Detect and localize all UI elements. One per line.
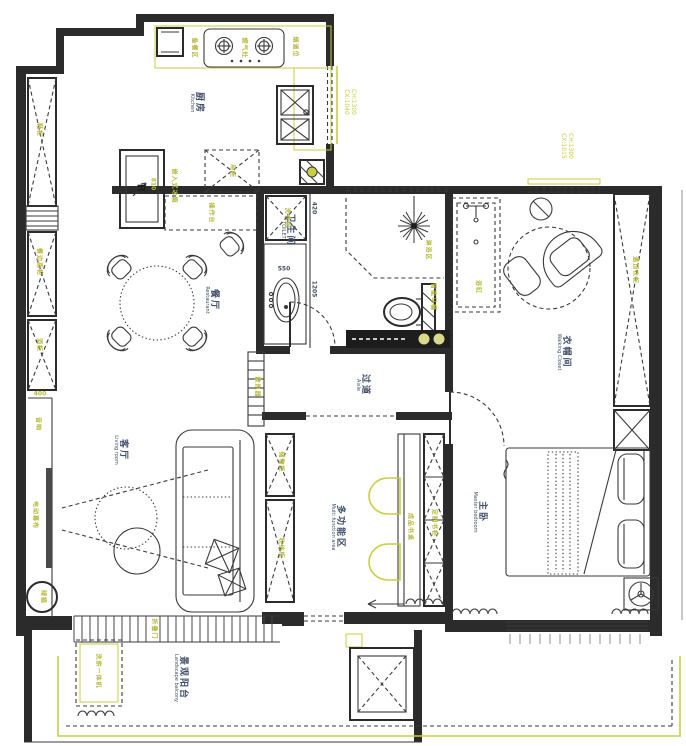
projection-screen (46, 468, 52, 568)
faucet-icon (464, 204, 489, 245)
pillow (618, 520, 644, 568)
armchair (531, 219, 604, 289)
bath-cabinet (346, 330, 450, 348)
boundary-lines (58, 190, 682, 736)
side-table (114, 528, 160, 574)
projector-beam (62, 470, 208, 508)
floor-plan-drawing (0, 0, 686, 746)
pillow (618, 454, 644, 504)
dining-furniture (103, 228, 249, 356)
projector-beam (62, 530, 208, 568)
threshold-marker (346, 634, 362, 647)
washbasin-icon (269, 278, 299, 322)
window-sill-ticks (510, 634, 640, 644)
desk (398, 434, 420, 606)
hallway-fixtures (248, 352, 264, 426)
shower-icon (398, 196, 430, 243)
interior-walls (112, 186, 453, 624)
left-wall-cabinets (26, 78, 58, 618)
bed-icon (504, 448, 650, 576)
shower-area-boundary (346, 198, 444, 278)
balcony-fixtures (74, 616, 414, 720)
bathroom-fixtures (264, 196, 450, 348)
bathroom-door-arc (290, 302, 335, 347)
washer-dryer-box (76, 640, 122, 706)
exterior-walls (16, 14, 662, 742)
folding-door-slats (74, 616, 280, 642)
pillow (218, 568, 246, 596)
living-furniture (62, 430, 254, 612)
floor-plan: 厨房Kitchen 餐厅Restaurant 客厅Living room 卫生间… (0, 0, 686, 746)
kitchen-fixtures (120, 26, 331, 230)
pillow (205, 539, 238, 572)
sink-icon (277, 86, 313, 144)
side-table-dotted (95, 487, 157, 549)
radiator-coil (452, 609, 497, 614)
bedroom-furniture (450, 392, 658, 614)
sofa (176, 430, 254, 612)
desk-chair (369, 478, 400, 514)
vanity-counter (264, 244, 306, 344)
bedroom-door-arc (450, 392, 504, 446)
radiator-coil (78, 711, 114, 716)
ottoman (500, 253, 544, 299)
shaft-icon (350, 648, 414, 720)
closet-furniture (452, 194, 650, 450)
windows (328, 66, 649, 644)
desk-chair (369, 544, 400, 580)
dining-table (120, 266, 194, 340)
flue-icon (300, 160, 324, 184)
gas-stove-icon (204, 29, 284, 67)
